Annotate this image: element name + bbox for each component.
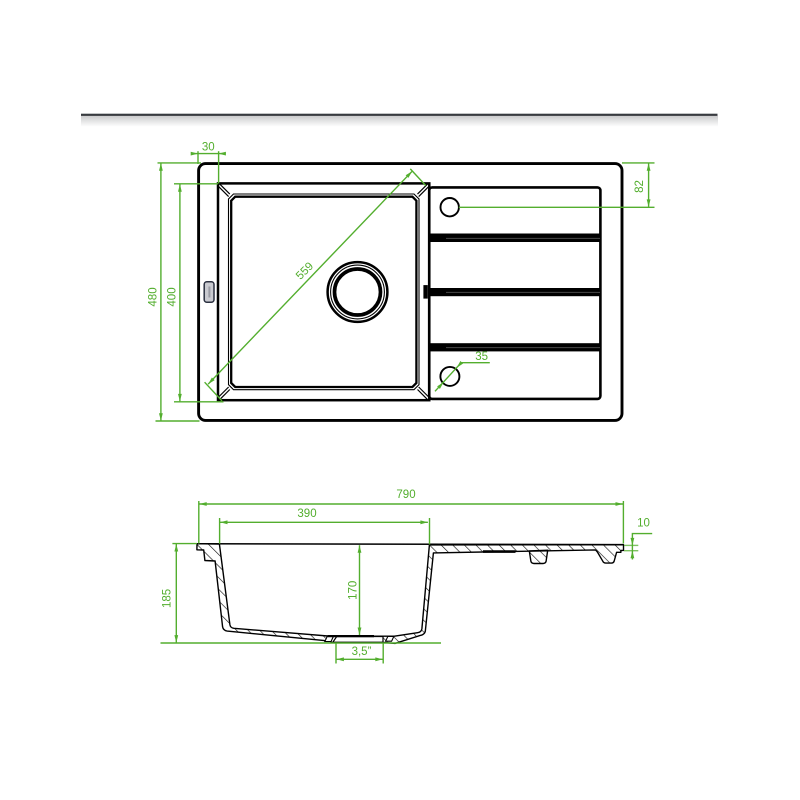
svg-text:82: 82 [634, 180, 646, 193]
svg-text:170: 170 [348, 581, 360, 600]
svg-text:35: 35 [475, 351, 488, 363]
svg-text:10: 10 [637, 518, 650, 530]
svg-text:559: 559 [294, 260, 316, 282]
svg-text:790: 790 [396, 489, 415, 501]
svg-text:390: 390 [297, 508, 316, 520]
svg-text:480: 480 [148, 287, 160, 306]
svg-text:185: 185 [161, 589, 173, 608]
svg-text:400: 400 [167, 287, 179, 306]
svg-text:3,5”: 3,5” [352, 646, 372, 658]
svg-text:30: 30 [202, 142, 215, 154]
